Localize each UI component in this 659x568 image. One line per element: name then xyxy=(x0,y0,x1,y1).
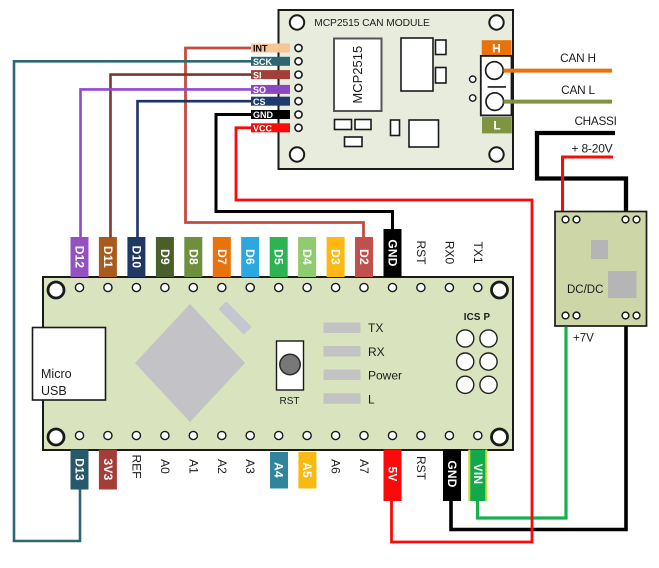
svg-text:+7V: +7V xyxy=(573,333,594,345)
svg-text:D13: D13 xyxy=(73,458,87,481)
svg-text:REF: REF xyxy=(129,455,143,479)
svg-text:SI: SI xyxy=(253,70,262,80)
svg-text:SO: SO xyxy=(253,85,266,95)
svg-text:A6: A6 xyxy=(329,459,343,474)
svg-text:A0: A0 xyxy=(158,459,172,474)
svg-text:DC/DC: DC/DC xyxy=(567,284,603,296)
svg-text:A3: A3 xyxy=(243,459,257,474)
svg-text:ICS P: ICS P xyxy=(464,312,491,323)
svg-text:MCP2515 CAN MODULE: MCP2515 CAN MODULE xyxy=(314,18,430,29)
svg-text:A4: A4 xyxy=(272,462,286,478)
svg-text:VIN: VIN xyxy=(471,464,485,485)
svg-text:5V: 5V xyxy=(386,466,400,481)
svg-text:USB: USB xyxy=(41,384,67,398)
svg-text:D11: D11 xyxy=(101,246,115,268)
svg-text:TX1: TX1 xyxy=(471,241,485,263)
svg-text:H: H xyxy=(492,41,501,55)
svg-text:GND: GND xyxy=(386,239,400,266)
svg-text:D10: D10 xyxy=(129,246,143,269)
svg-text:A1: A1 xyxy=(186,459,200,474)
svg-text:INT: INT xyxy=(253,44,268,54)
svg-text:3V3: 3V3 xyxy=(101,459,115,481)
svg-text:RX0: RX0 xyxy=(442,241,456,265)
svg-text:RST: RST xyxy=(414,241,428,266)
svg-text:A5: A5 xyxy=(300,462,314,478)
svg-text:D6: D6 xyxy=(243,249,257,265)
svg-text:L: L xyxy=(368,392,375,406)
svg-text:CS: CS xyxy=(253,97,266,107)
svg-text:D2: D2 xyxy=(357,249,371,265)
svg-text:D8: D8 xyxy=(186,249,200,265)
svg-text:+ 8-20V: + 8-20V xyxy=(572,142,613,156)
svg-text:D7: D7 xyxy=(215,249,229,265)
svg-text:D12: D12 xyxy=(73,246,87,269)
svg-text:MCP2515: MCP2515 xyxy=(350,46,365,104)
svg-text:Power: Power xyxy=(368,369,402,383)
svg-text:D9: D9 xyxy=(158,249,172,265)
svg-text:RX: RX xyxy=(368,345,385,359)
svg-text:D4: D4 xyxy=(300,249,314,265)
svg-text:RST: RST xyxy=(280,396,300,407)
svg-text:TX: TX xyxy=(368,321,383,335)
svg-text:CHASSI: CHASSI xyxy=(574,114,616,128)
svg-text:CAN H: CAN H xyxy=(560,51,596,65)
svg-text:CAN L: CAN L xyxy=(561,83,595,97)
svg-text:D5: D5 xyxy=(272,249,286,265)
svg-text:GND: GND xyxy=(445,460,459,487)
svg-text:RST: RST xyxy=(414,456,428,481)
svg-text:Micro: Micro xyxy=(41,367,72,381)
svg-text:A2: A2 xyxy=(215,459,229,474)
svg-text:L: L xyxy=(493,119,500,133)
svg-text:A7: A7 xyxy=(357,459,371,474)
svg-text:D3: D3 xyxy=(329,249,343,265)
svg-text:GND: GND xyxy=(253,110,274,120)
svg-text:VCC: VCC xyxy=(253,124,273,134)
svg-text:SCK: SCK xyxy=(253,57,273,67)
